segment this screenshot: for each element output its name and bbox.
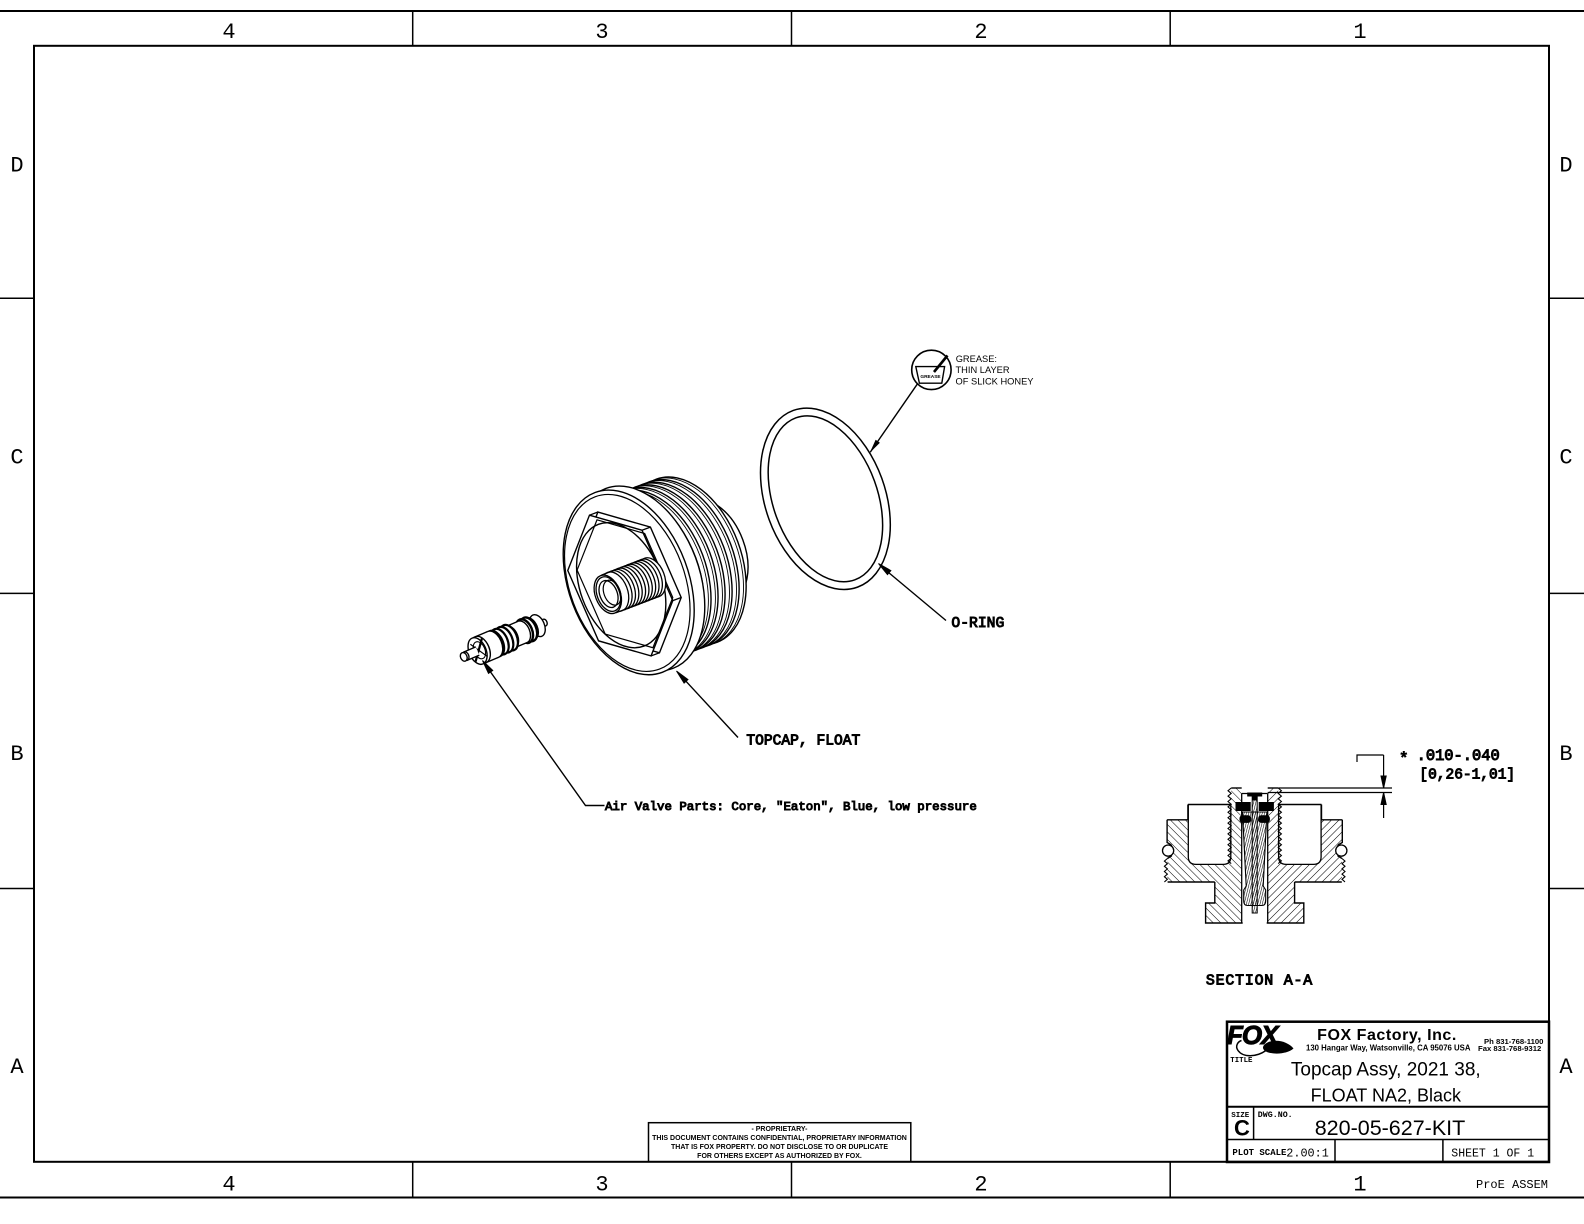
svg-text:GREASE:: GREASE: xyxy=(956,354,997,364)
svg-text:TITLE: TITLE xyxy=(1230,1057,1253,1065)
svg-text:Air Valve Parts: Core, "Eaton": Air Valve Parts: Core, "Eaton", Blue, lo… xyxy=(605,800,977,814)
svg-text:FLOAT NA2, Black: FLOAT NA2, Black xyxy=(1311,1086,1462,1106)
svg-text:*: * xyxy=(1399,750,1409,768)
svg-text:GREASE: GREASE xyxy=(920,374,941,380)
svg-text:.010-.040: .010-.040 xyxy=(1417,747,1500,765)
svg-text:1: 1 xyxy=(1353,20,1366,45)
svg-text:FOR OTHERS EXCEPT AS AUTHORIZE: FOR OTHERS EXCEPT AS AUTHORIZED BY FOX. xyxy=(697,1153,862,1160)
svg-text:[0,26-1,01]: [0,26-1,01] xyxy=(1419,768,1515,784)
svg-text:C: C xyxy=(1559,446,1572,471)
svg-text:SHEET 1 OF 1: SHEET 1 OF 1 xyxy=(1451,1148,1534,1161)
svg-text:SECTION A-A: SECTION A-A xyxy=(1206,974,1313,990)
svg-text:820-05-627-KIT: 820-05-627-KIT xyxy=(1315,1116,1466,1140)
svg-text:130 Hangar Way, Watsonville, C: 130 Hangar Way, Watsonville, CA 95076 US… xyxy=(1306,1044,1471,1053)
svg-text:2.00:1: 2.00:1 xyxy=(1286,1147,1328,1161)
svg-text:D: D xyxy=(1559,154,1572,179)
svg-text:4: 4 xyxy=(222,1173,235,1198)
svg-text:2: 2 xyxy=(974,20,987,45)
svg-text:ProE ASSEM: ProE ASSEM xyxy=(1476,1178,1548,1192)
svg-text:2: 2 xyxy=(974,1173,987,1198)
svg-text:1: 1 xyxy=(1353,1173,1366,1198)
svg-text:C: C xyxy=(1234,1115,1250,1140)
svg-text:- PROPRIETARY-: - PROPRIETARY- xyxy=(751,1126,808,1133)
svg-text:3: 3 xyxy=(595,20,608,45)
svg-text:A: A xyxy=(1559,1055,1573,1080)
svg-text:PLOT SCALE: PLOT SCALE xyxy=(1232,1148,1287,1158)
svg-text:FOX Factory, Inc.: FOX Factory, Inc. xyxy=(1317,1027,1457,1044)
svg-text:O-RING: O-RING xyxy=(951,616,1004,632)
svg-text:4: 4 xyxy=(222,20,235,45)
svg-text:TOPCAP, FLOAT: TOPCAP, FLOAT xyxy=(746,734,860,750)
svg-text:C: C xyxy=(10,446,23,471)
svg-text:THIS DOCUMENT CONTAINS CONFIDE: THIS DOCUMENT CONTAINS CONFIDENTIAL, PRO… xyxy=(652,1135,907,1142)
svg-text:THIN LAYER: THIN LAYER xyxy=(956,365,1010,375)
svg-text:Fax 831-768-9312: Fax 831-768-9312 xyxy=(1478,1044,1541,1053)
svg-text:THAT IS FOX PROPERTY. DO NOT: THAT IS FOX PROPERTY. DO NOT DISCLOSE TO… xyxy=(671,1144,888,1151)
svg-text:A: A xyxy=(10,1055,24,1080)
svg-text:B: B xyxy=(10,742,23,767)
svg-text:B: B xyxy=(1559,742,1572,767)
svg-text:D: D xyxy=(10,154,23,179)
svg-text:3: 3 xyxy=(595,1173,608,1198)
svg-text:Topcap Assy, 2021 38,: Topcap Assy, 2021 38, xyxy=(1291,1060,1481,1081)
svg-text:DWG.NO.: DWG.NO. xyxy=(1258,1111,1293,1120)
svg-text:OF SLICK HONEY: OF SLICK HONEY xyxy=(956,377,1034,387)
